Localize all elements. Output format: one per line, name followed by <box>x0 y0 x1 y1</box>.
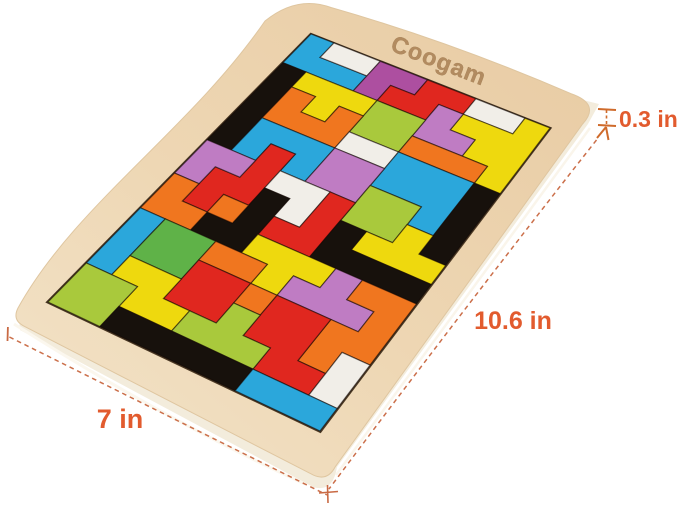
svg-text:0.3 in: 0.3 in <box>619 106 678 132</box>
svg-text:7 in: 7 in <box>97 404 144 434</box>
svg-text:10.6 in: 10.6 in <box>474 307 552 335</box>
